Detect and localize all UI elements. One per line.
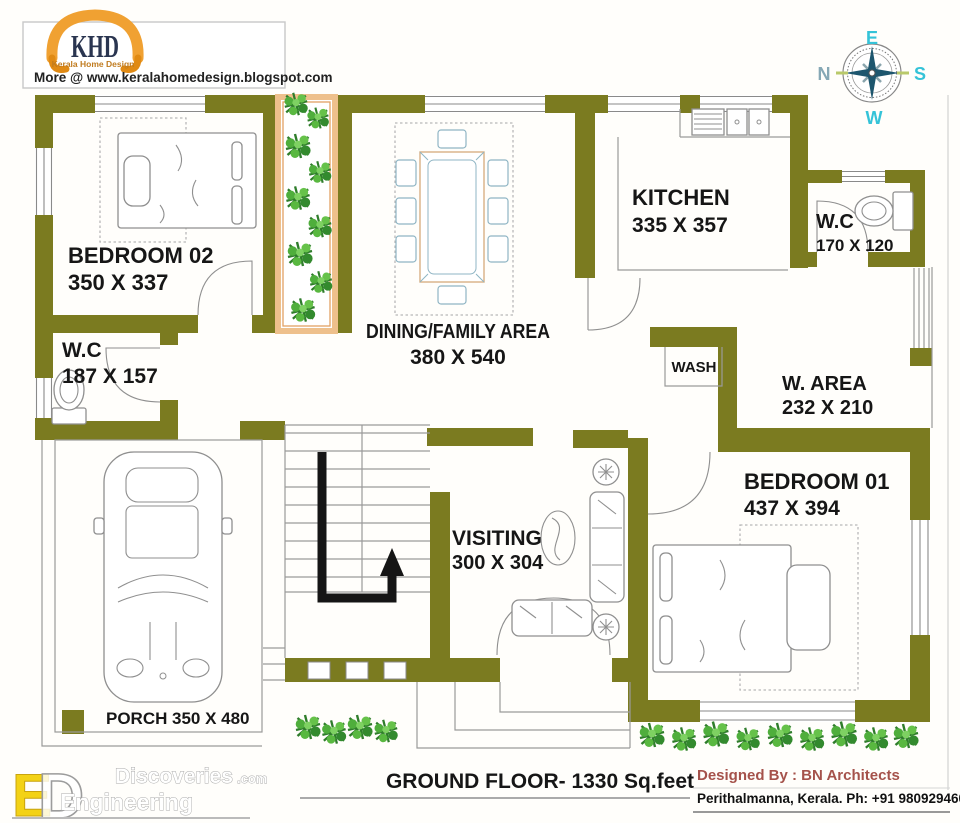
designer-address: Perithalmanna, Kerala. Ph: +91 980929460… (697, 791, 960, 806)
ground-floor-title: GROUND FLOOR- 1330 Sq.feet (386, 770, 694, 793)
compass: E N S W (818, 28, 927, 128)
compass-letter-e: E (866, 28, 878, 48)
room-size-wc1: 187 X 157 (62, 365, 158, 388)
room-size-bedroom01: 437 X 394 (744, 497, 840, 520)
kitchen-counter-icon (692, 109, 769, 135)
window (608, 95, 680, 113)
room-size-visiting: 300 X 304 (452, 552, 544, 574)
stair-arrow-head (380, 548, 404, 576)
stair-direction-path (322, 452, 392, 598)
bed-icon-bedroom02 (100, 118, 256, 242)
room-name-visiting: VISITING (452, 527, 542, 550)
door-kitchen (588, 278, 640, 330)
window (95, 95, 205, 113)
room-name-wash: WASH (672, 359, 717, 376)
room-size-porch: 350 X 480 (172, 709, 250, 728)
website-line: More @ www.keralahomedesign.blogspot.com (34, 70, 332, 85)
room-name-porch: PORCH (106, 709, 167, 728)
car-icon (94, 452, 232, 702)
designer-credit: Designed By : BN Architects (697, 767, 900, 784)
footer: GROUND FLOOR- 1330 Sq.feet Designed By :… (300, 767, 960, 812)
porch-legend-square (62, 710, 84, 734)
door-bedroom02 (198, 261, 252, 315)
room-size-warea: 232 X 210 (782, 397, 873, 419)
compass-letter-w: W (866, 108, 883, 128)
staircase (285, 425, 430, 598)
compass-letter-n: N (818, 64, 831, 84)
window (842, 170, 885, 183)
watermark-discoveries: Discoveries (115, 765, 233, 788)
room-size-dining: 380 X 540 (410, 346, 506, 369)
room-name-warea: W. AREA (782, 373, 867, 395)
room-size-bedroom02: 350 X 337 (68, 270, 168, 295)
courtyard-planter (278, 93, 335, 331)
room-name-dining: DINING/FAMILY AREA (366, 321, 550, 343)
room-name-wc2: W.C (816, 211, 854, 233)
room-name-bedroom02: BEDROOM 02 (68, 243, 213, 268)
room-size-kitchen: 335 X 357 (632, 214, 728, 237)
room-name-kitchen: KITCHEN (632, 185, 730, 210)
room-name-wc1: W.C (62, 339, 102, 362)
bed-icon-bedroom01 (653, 525, 858, 690)
floor-plan-page: KHD Kerala Home Design More @ www.kerala… (0, 0, 960, 823)
watermark-engineering: Engineering (60, 789, 193, 815)
window (35, 148, 53, 215)
window (425, 95, 545, 113)
toilet-icon-wc2 (855, 192, 913, 230)
compass-letter-s: S (914, 64, 926, 84)
window (910, 520, 930, 635)
window (35, 378, 53, 418)
watermark-logo: E D Discoveries .com Engineering (12, 760, 267, 823)
room-size-wc2: 170 X 120 (816, 236, 894, 255)
watermark-dotcom: .com (237, 771, 267, 786)
window (700, 700, 855, 722)
door-bedroom01 (648, 452, 710, 514)
khd-subtitle: Kerala Home Design (52, 59, 135, 69)
room-name-bedroom01: BEDROOM 01 (744, 469, 889, 494)
header: KHD Kerala Home Design More @ www.kerala… (23, 15, 332, 88)
dining-table-icon (395, 123, 513, 315)
